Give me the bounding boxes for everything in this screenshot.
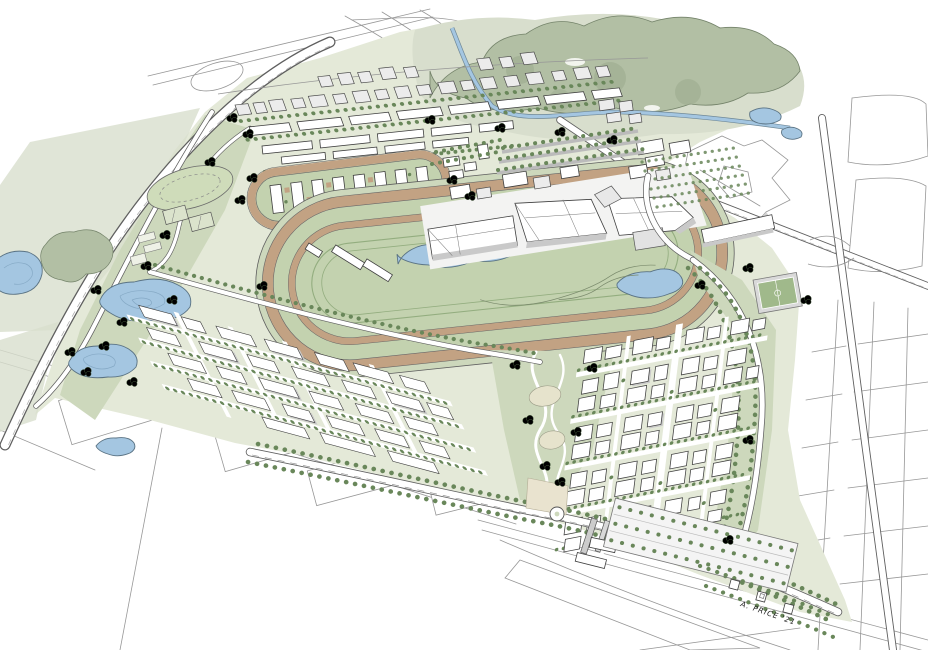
soccer-field — [753, 272, 802, 313]
forest-pond-2 — [782, 127, 803, 139]
masterplan-illustration: A. PRICE '21 — [0, 0, 928, 650]
aerial-sketch: A. PRICE '21 — [0, 0, 928, 650]
